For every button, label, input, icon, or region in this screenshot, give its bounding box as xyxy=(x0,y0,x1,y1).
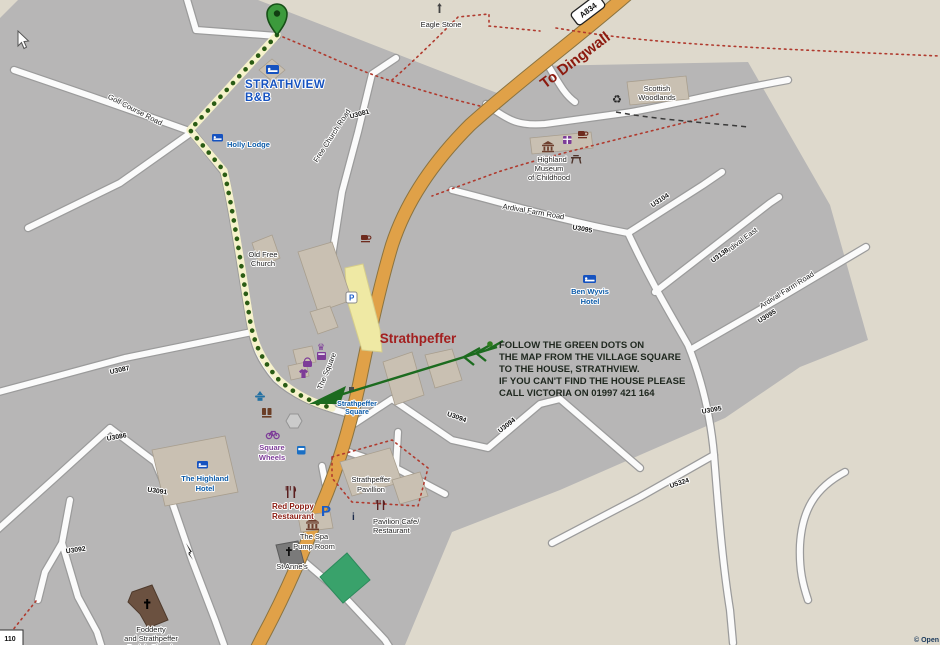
label-fodderty-1: Fodderty xyxy=(136,625,166,634)
label-pavilion-cafe-2: Restaurant xyxy=(373,526,411,535)
label-strathpeffer-square-2: Square xyxy=(345,409,369,416)
strathpeffer-map[interactable]: ♻ xyxy=(0,0,940,645)
shop-icon xyxy=(317,352,326,360)
copyright-label: © Open xyxy=(914,636,939,644)
jewellery-shop-icon: ♛ xyxy=(317,342,325,352)
label-st-annes: St Anne's xyxy=(276,562,308,571)
svg-text:TO THE HOUSE, STRATHVIEW.: TO THE HOUSE, STRATHVIEW. xyxy=(499,364,640,375)
label-square-wheels-1: Square xyxy=(259,443,284,452)
bus-stop-icon xyxy=(297,446,306,455)
label-spa-pump-1: The Spa xyxy=(300,532,329,541)
map-canvas[interactable]: ♻ xyxy=(0,0,940,645)
lodging-icon xyxy=(212,134,223,142)
svg-text:IF YOU CAN'T FIND THE HOUSE PL: IF YOU CAN'T FIND THE HOUSE PLEASE xyxy=(499,376,685,387)
label-holly-lodge: Holly Lodge xyxy=(227,140,270,149)
label-museum-2: Museum xyxy=(535,164,564,173)
label-eagle-stone: Eagle Stone xyxy=(421,20,462,29)
label-old-free-church-2: Church xyxy=(251,259,275,268)
recycle-icon: ♻ xyxy=(612,94,622,106)
label-spa-pump-2: Pump Room xyxy=(293,542,335,551)
label-strathpeffer-title: Strathpeffer xyxy=(380,331,457,346)
label-pavillion-1: Strathpeffer xyxy=(351,475,391,484)
label-highland-hotel-2: Hotel xyxy=(196,484,215,493)
label-pavillion-2: Pavillion xyxy=(357,485,385,494)
label-strathview-1: STRATHVIEW xyxy=(245,79,325,91)
marker-110-box: 110 xyxy=(0,630,23,645)
svg-text:THE MAP FROM THE VILLAGE SQUAR: THE MAP FROM THE VILLAGE SQUARE xyxy=(499,352,681,363)
cafe-icon xyxy=(578,131,588,138)
parking-icon: P xyxy=(321,503,331,520)
parking-box-icon: P xyxy=(346,292,357,303)
cafe-icon xyxy=(361,235,371,242)
label-scottish-woodlands-2: Woodlands xyxy=(638,93,676,102)
label-red-poppy-2: Restaurant xyxy=(272,512,314,521)
svg-text:CALL VICTORIA ON 01997 421 164: CALL VICTORIA ON 01997 421 164 xyxy=(499,388,655,399)
label-red-poppy-1: Red Poppy xyxy=(272,502,314,511)
lodging-icon xyxy=(197,461,208,469)
label-museum-3: of Childhood xyxy=(528,173,570,182)
label-old-free-church-1: Old Free xyxy=(248,250,277,259)
label-museum-1: Highland xyxy=(537,155,567,164)
info-icon: i xyxy=(352,512,355,523)
label-pavilion-cafe-1: Pavilion Cafe/ xyxy=(373,517,420,526)
label-strathpeffer-square-1: Strathpeffer xyxy=(337,401,377,408)
svg-text:110: 110 xyxy=(4,636,15,643)
label-fodderty-2: and Strathpeffer xyxy=(124,634,178,643)
label-ben-wyvis-1: Ben Wyvis xyxy=(571,287,609,296)
gift-shop-icon xyxy=(563,136,572,144)
label-strathview-2: B&B xyxy=(245,92,271,104)
label-scottish-woodlands-1: Scottish xyxy=(644,84,671,93)
label-highland-hotel-1: The Highland xyxy=(181,474,229,483)
lodging-icon xyxy=(583,275,596,283)
svg-text:P: P xyxy=(349,294,355,303)
label-square-wheels-2: Wheels xyxy=(259,453,285,462)
label-ben-wyvis-2: Hotel xyxy=(581,297,600,306)
bandstand-hexagon xyxy=(286,414,302,428)
lodging-icon xyxy=(266,65,279,74)
svg-text:FOLLOW THE GREEN DOTS ON: FOLLOW THE GREEN DOTS ON xyxy=(499,340,644,351)
bullet-icon xyxy=(487,341,493,347)
